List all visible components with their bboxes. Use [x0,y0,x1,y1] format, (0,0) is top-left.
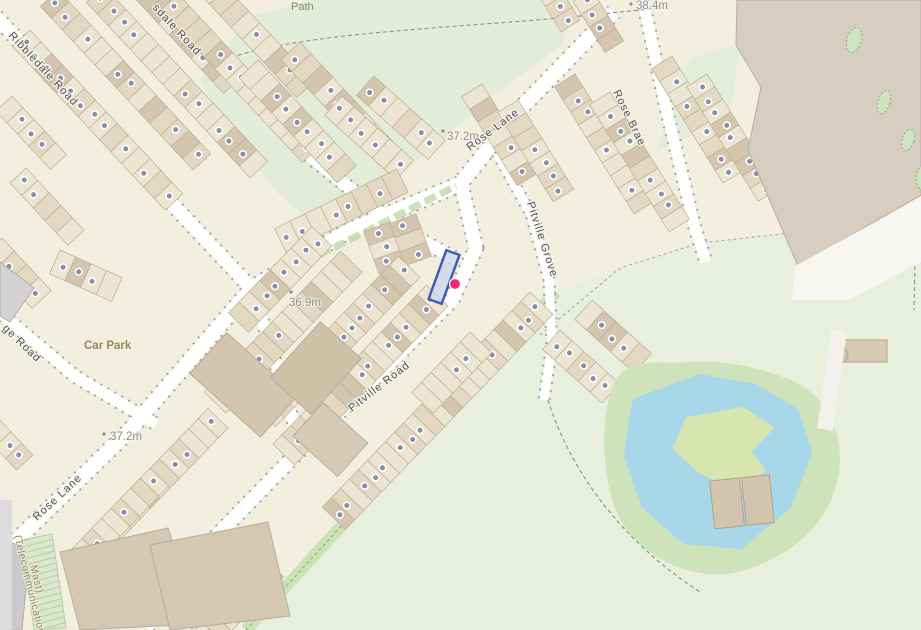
map-viewport[interactable]: Ribbledale Road sdale Road Path 37.2m Ro… [0,0,921,630]
park-building [741,475,774,526]
spot-height-dot [441,129,444,132]
park-building [710,478,745,529]
label-elev-372-mid: 37.2m [110,431,142,443]
label-elev-369: 36.9m [289,297,321,309]
label-car-park: Car Park [84,340,132,352]
spot-height-dot [629,2,632,5]
map-canvas[interactable]: Ribbledale Road sdale Road Path 37.2m Ro… [0,0,921,630]
spot-height-dot [102,432,105,435]
selected-location-marker[interactable] [450,279,461,290]
gray-strip [0,500,12,630]
label-path: Path [291,1,314,13]
spot-height-dot [289,290,292,293]
park-building [843,340,887,362]
label-elev-384: 38.4m [636,0,668,12]
